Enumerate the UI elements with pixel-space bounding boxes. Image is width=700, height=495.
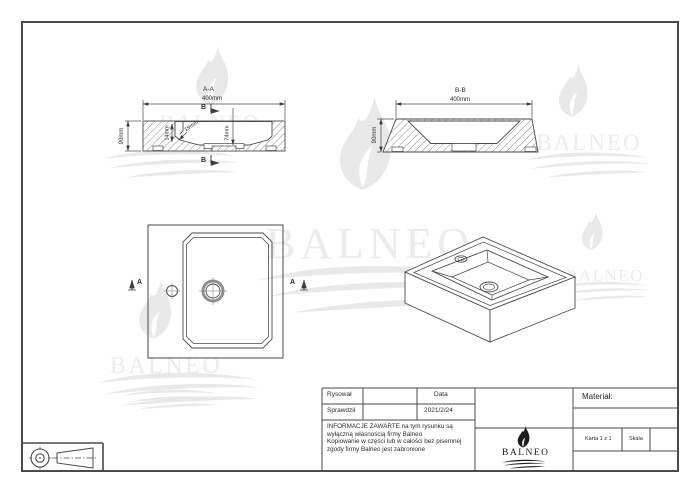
- watermark-flame-icon: [559, 64, 588, 117]
- watermark-waves-icon: [104, 150, 239, 177]
- section-bb-height-dim: 90mm: [372, 127, 378, 144]
- top-view-cut-marker-left: A: [137, 279, 142, 286]
- date-value: 2021/2/24: [424, 408, 453, 415]
- watermark-flame-icon: [340, 96, 391, 190]
- drawing-sheet: BALNEO BALNEO BALNEO BALNEO BALNEO: [0, 0, 700, 495]
- section-aa-height-dim: 90mm: [119, 128, 125, 145]
- top-view-cut-marker-right: A: [290, 279, 295, 286]
- scale-label: Skala: [629, 437, 643, 443]
- sheet-number: Karta 1 z 1: [585, 437, 612, 443]
- copyright-notice-line: INFORMACJE ZAWARTE na tym rysunku są: [327, 423, 473, 431]
- balneo-waves-icon: [502, 460, 545, 469]
- watermark-brand-text: BALNEO: [536, 130, 641, 155]
- drawing-canvas: BALNEO BALNEO BALNEO BALNEO BALNEO: [0, 0, 700, 495]
- balneo-brand-text: BALNEO: [502, 449, 550, 459]
- section-aa-title: A-A: [203, 87, 214, 94]
- checked-by-label: Sprawdził: [327, 408, 355, 415]
- section-aa-width-dim: 400mm: [202, 96, 222, 102]
- watermark-brand-text: BALNEO: [566, 266, 644, 285]
- section-bb-drawing: [377, 100, 538, 152]
- section-bb-width-dim: 400mm: [450, 97, 470, 103]
- watermark-brand-text: BALNEO: [110, 353, 222, 379]
- copyright-notice-line: Kopiowanie w części lub w całości bez pi…: [327, 438, 473, 446]
- copyright-notice-line: zgody firmy Balneo jest zabronione: [327, 446, 473, 454]
- balneo-watermarks: BALNEO BALNEO BALNEO BALNEO BALNEO: [99, 46, 650, 409]
- balneo-flame-icon: [518, 426, 530, 448]
- material-label: Materiał:: [582, 393, 613, 401]
- projection-symbol: [22, 443, 103, 471]
- section-aa-cut-marker-top: B: [201, 104, 206, 111]
- section-aa-cut-marker-bottom: B: [201, 157, 206, 164]
- copyright-notice: INFORMACJE ZAWARTE na tym rysunku są wył…: [327, 423, 473, 454]
- section-aa-bowl-depth-dim: 74mm: [225, 125, 231, 140]
- watermark-flame-icon: [582, 212, 603, 250]
- copyright-notice-line: wyłączną własnością firmy Balneo: [327, 431, 473, 439]
- watermark-waves-icon: [526, 152, 650, 177]
- watermark-flame-icon: [139, 280, 171, 339]
- drawn-by-label: Rysował: [327, 392, 352, 399]
- section-aa-step-dim: 14mm: [165, 125, 171, 140]
- section-bb-title: B-B: [455, 88, 466, 95]
- date-label: Data: [434, 392, 448, 399]
